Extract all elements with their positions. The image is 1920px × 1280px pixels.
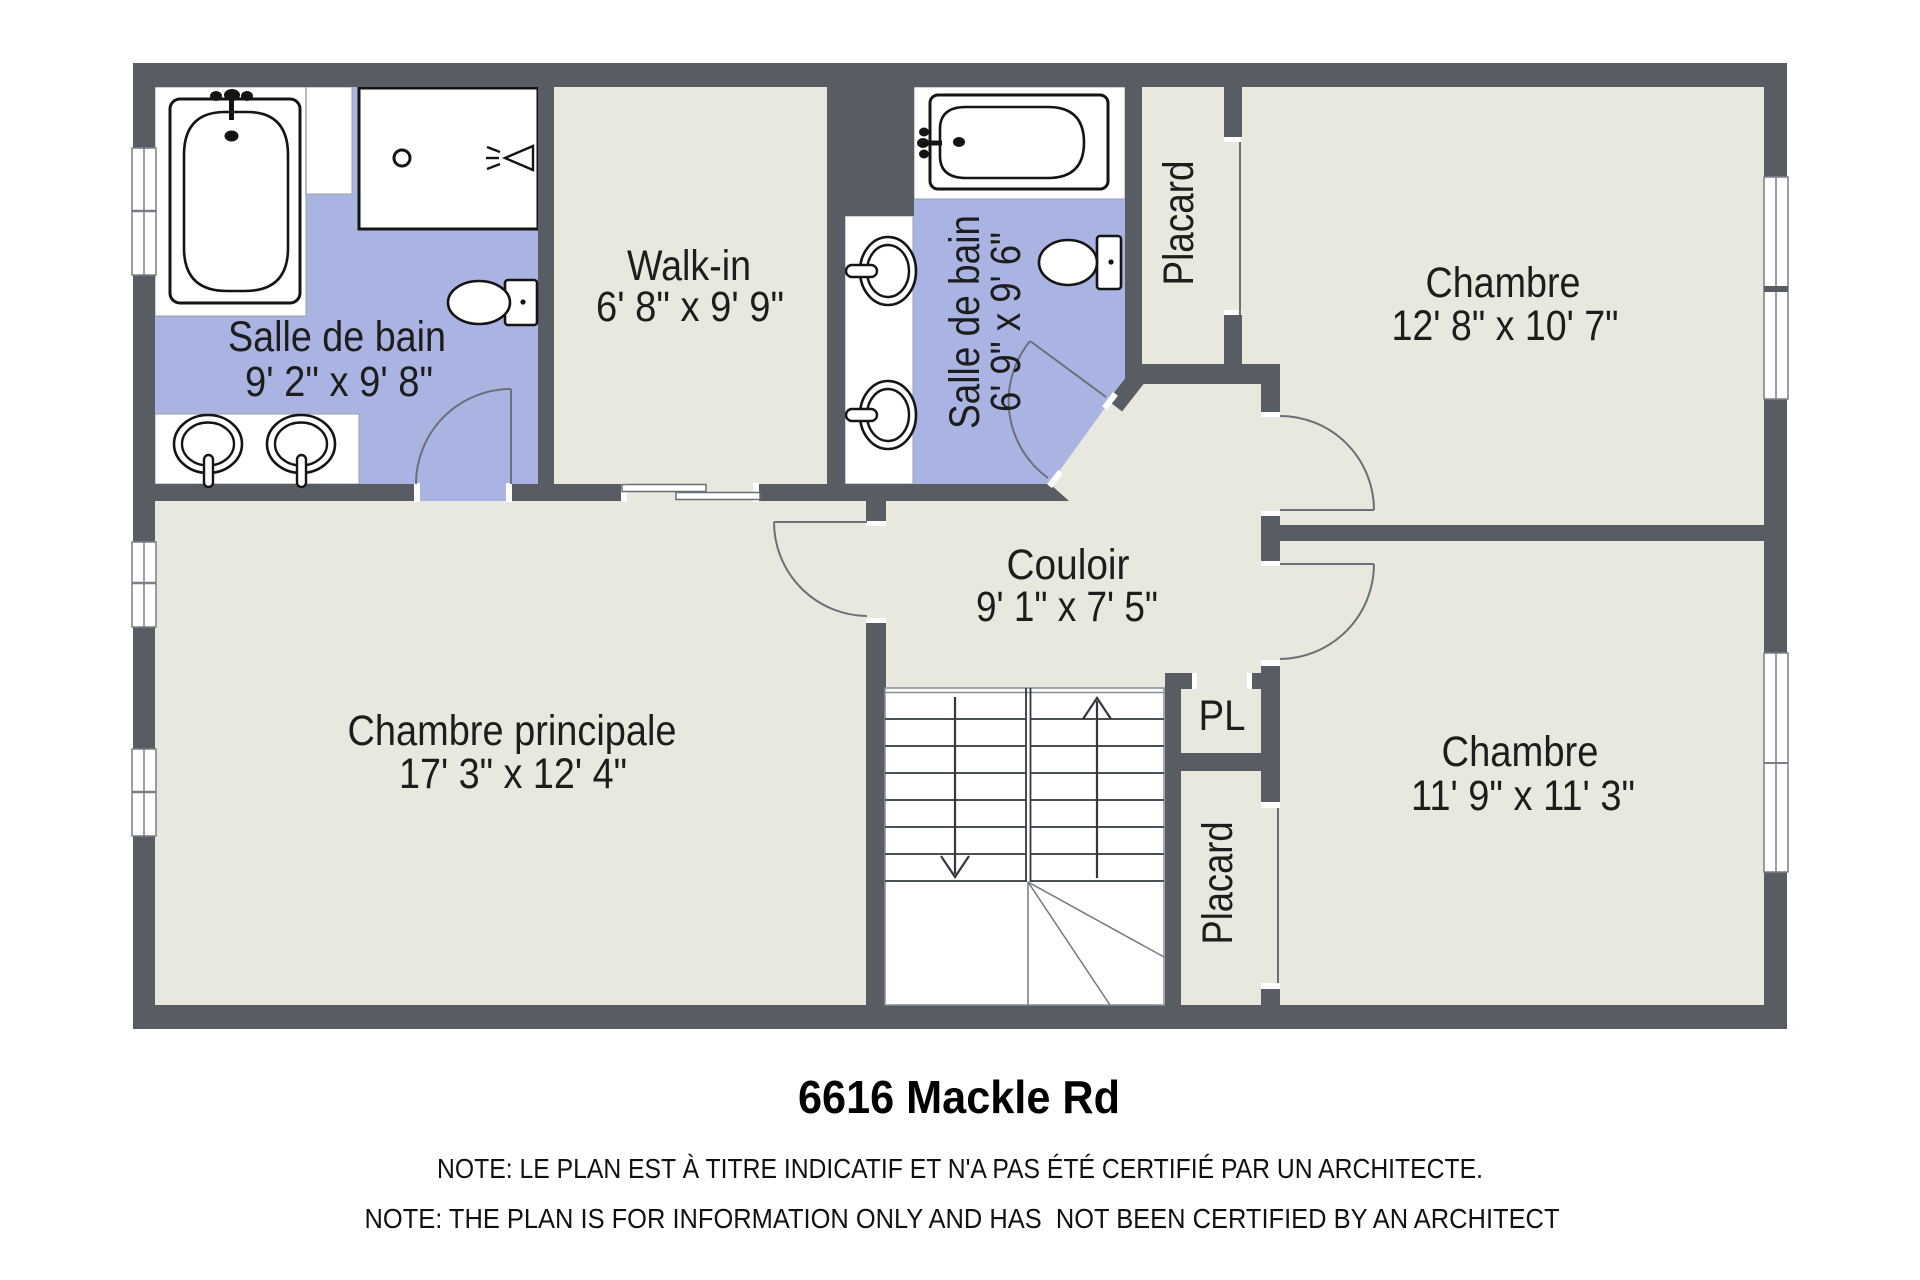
svg-text:Couloir: Couloir	[1007, 541, 1130, 589]
svg-text:11' 9" x 11' 3": 11' 9" x 11' 3"	[1411, 772, 1635, 820]
svg-text:Salle de bain: Salle de bain	[228, 313, 446, 361]
svg-text:NOTE: THE PLAN IS FOR INFORMAT: NOTE: THE PLAN IS FOR INFORMATION ONLY A…	[365, 1203, 1560, 1234]
svg-text:6' 9" x 9' 6": 6' 9" x 9' 6"	[982, 232, 1030, 412]
svg-text:6' 8" x 9' 9": 6' 8" x 9' 9"	[596, 283, 784, 331]
svg-text:12' 8" x 10' 7": 12' 8" x 10' 7"	[1392, 302, 1619, 350]
svg-text:PL: PL	[1199, 692, 1246, 740]
svg-text:Chambre principale: Chambre principale	[348, 707, 677, 755]
svg-text:Placard: Placard	[1155, 161, 1203, 286]
svg-text:6616 Mackle Rd: 6616 Mackle Rd	[798, 1071, 1120, 1123]
svg-text:9' 2" x 9' 8": 9' 2" x 9' 8"	[245, 358, 433, 406]
svg-text:9' 1" x 7' 5": 9' 1" x 7' 5"	[976, 583, 1158, 631]
svg-text:Chambre: Chambre	[1442, 728, 1599, 776]
svg-text:Placard: Placard	[1194, 822, 1242, 945]
svg-text:Chambre: Chambre	[1426, 259, 1581, 307]
svg-text:NOTE: LE PLAN EST À TITRE INDI: NOTE: LE PLAN EST À TITRE INDICATIF ET N…	[437, 1153, 1483, 1184]
svg-text:17' 3" x 12' 4": 17' 3" x 12' 4"	[399, 750, 627, 798]
